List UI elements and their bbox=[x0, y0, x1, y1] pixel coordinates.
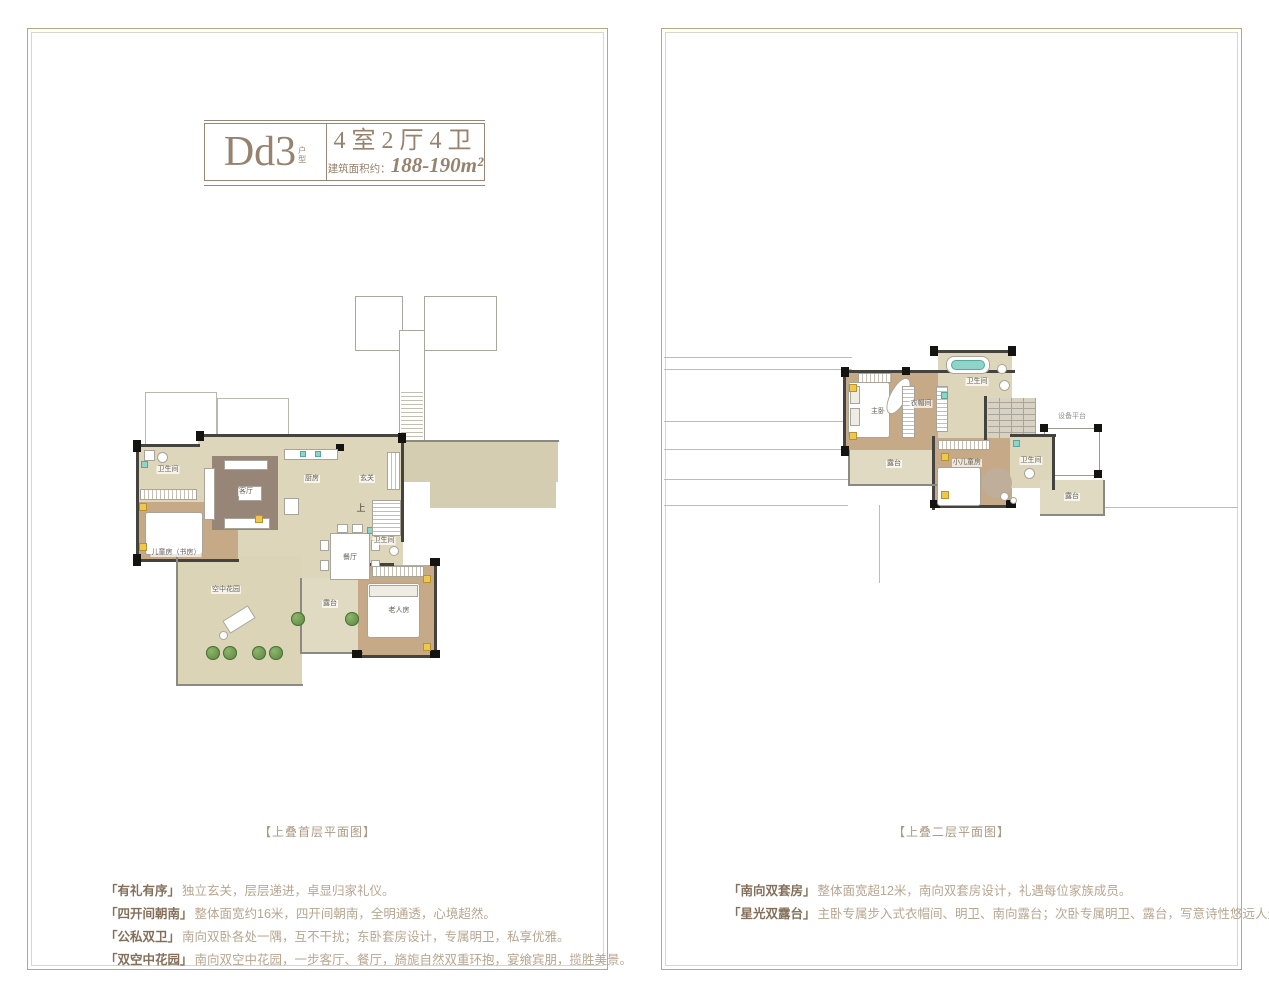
site-line bbox=[879, 505, 880, 583]
sink-icon bbox=[1013, 440, 1020, 447]
room-label-kids: 小儿童房 bbox=[952, 459, 982, 467]
wall-pier bbox=[841, 446, 849, 456]
toilet bbox=[999, 380, 1010, 391]
wall bbox=[1010, 434, 1056, 437]
closet-shelves bbox=[902, 386, 915, 438]
wall-pier bbox=[1008, 346, 1016, 356]
room-label-master: 主卧 bbox=[870, 408, 886, 416]
wall-pier bbox=[1094, 424, 1102, 432]
toilet bbox=[1024, 468, 1035, 479]
bathtub-water bbox=[951, 360, 985, 370]
wall-pier bbox=[1040, 424, 1048, 432]
site-line bbox=[664, 505, 848, 506]
room-label-closet: 衣帽间 bbox=[910, 400, 933, 408]
wardrobe bbox=[938, 440, 990, 450]
room-label-bath: 卫生间 bbox=[966, 378, 989, 386]
accent-marker bbox=[941, 453, 949, 461]
wall-light bbox=[1040, 514, 1105, 516]
stool bbox=[1010, 497, 1017, 504]
site-line bbox=[664, 479, 848, 480]
room-label-equipment: 设备平台 bbox=[1057, 413, 1087, 421]
room-label-terrace: 露台 bbox=[886, 460, 902, 468]
wall bbox=[936, 350, 1014, 353]
site-line bbox=[1100, 507, 1238, 508]
wall-light bbox=[1103, 480, 1105, 516]
wall-pier bbox=[841, 367, 849, 377]
floorplan-second-floor: 主卧 衣帽间 卫生间 设备平台 露台 小儿童房 卫生间 露台 bbox=[0, 0, 1269, 999]
stool bbox=[1000, 492, 1009, 501]
wall-light bbox=[848, 484, 938, 486]
accent-marker bbox=[849, 384, 857, 392]
site-line bbox=[664, 357, 852, 358]
wall bbox=[843, 370, 846, 454]
wall-pier bbox=[930, 346, 938, 356]
pillow bbox=[850, 408, 860, 426]
sink bbox=[997, 364, 1007, 374]
wall bbox=[984, 396, 987, 446]
wall bbox=[1052, 436, 1055, 490]
site-line bbox=[664, 369, 852, 370]
accent-marker bbox=[849, 432, 857, 440]
brochure-page: Dd3 户型 4室2厅4卫 建筑面积约： 188-190m² 【上叠首层平面图】… bbox=[0, 0, 1269, 999]
site-line bbox=[664, 449, 848, 450]
bed bbox=[937, 467, 981, 506]
site-line bbox=[664, 421, 852, 422]
shower-icon bbox=[941, 392, 948, 399]
accent-marker bbox=[941, 491, 949, 499]
wall-pier bbox=[1094, 470, 1102, 478]
room-label-bath: 卫生间 bbox=[1020, 457, 1043, 465]
wall bbox=[932, 436, 935, 510]
wall-pier bbox=[902, 367, 910, 375]
room-label-terrace: 露台 bbox=[1064, 493, 1080, 501]
